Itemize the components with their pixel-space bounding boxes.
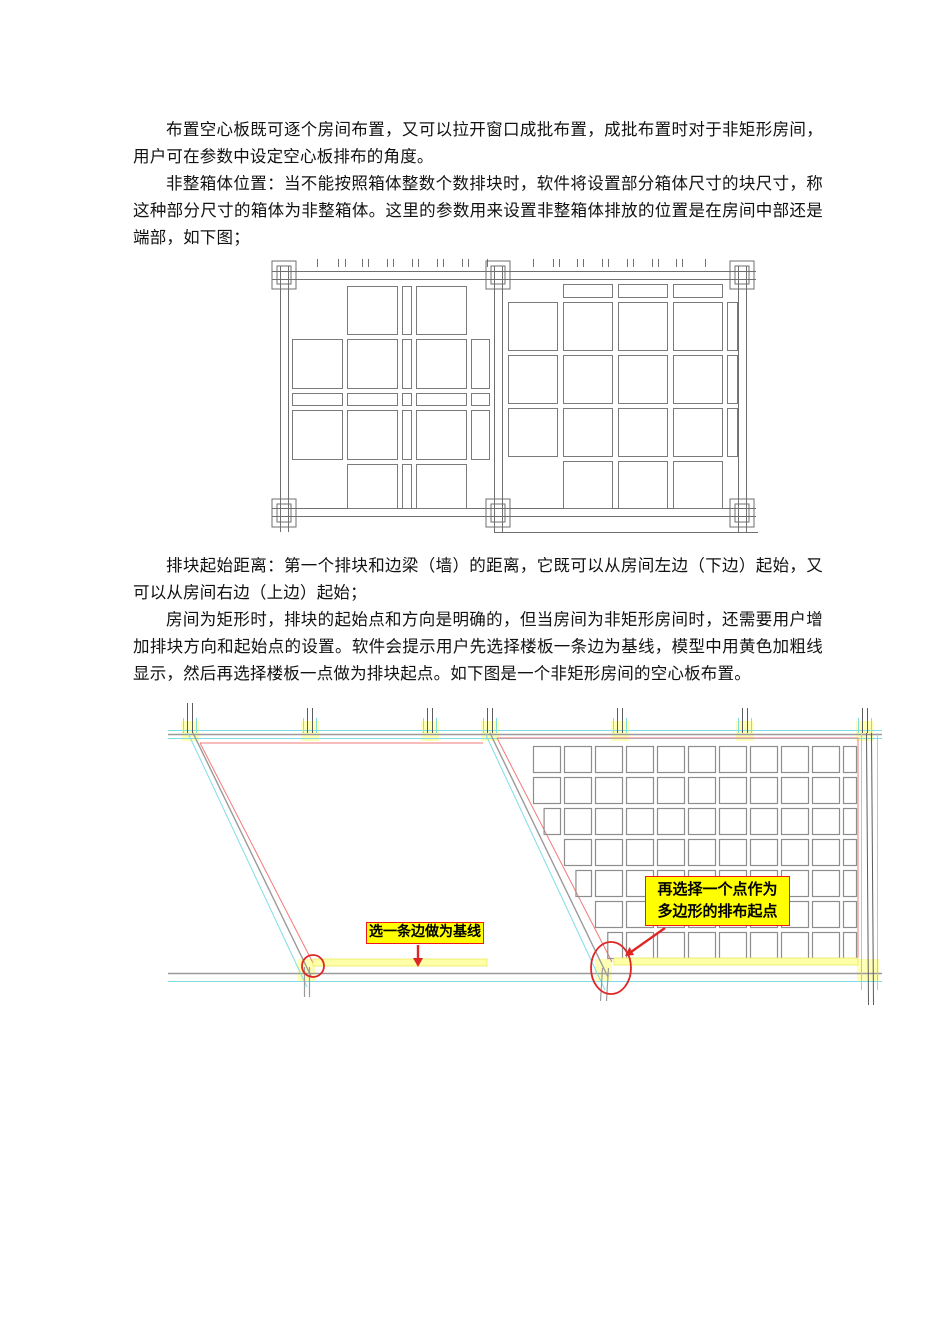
figure-polygon-room-plan: 选一条边做为基线 再选择一个点作为 多边形的排布起点 — [165, 700, 885, 1020]
paragraph-partial-box-position: 非整箱体位置：当不能按照箱体整数个数排块时，软件将设置部分箱体尺寸的块尺寸，称这… — [133, 170, 823, 251]
box-grid-plan-canvas — [268, 256, 760, 538]
start-point-callout-line1: 再选择一个点作为 — [646, 879, 789, 901]
start-point-callout-line2: 多边形的排布起点 — [646, 901, 789, 923]
baseline-callout: 选一条边做为基线 — [366, 922, 484, 944]
paragraph-batch-layout: 布置空心板既可逐个房间布置，又可以拉开窗口成批布置，成批布置时对于非矩形房间，用… — [133, 116, 823, 170]
figure-box-grid-plan — [268, 256, 760, 538]
paragraph-non-rect-room: 房间为矩形时，排块的起始点和方向是明确的，但当房间为非矩形房间时，还需要用户增加… — [133, 606, 823, 687]
paragraph-start-distance: 排块起始距离：第一个排块和边梁（墙）的距离，它既可以从房间左边（下边）起始，又可… — [133, 552, 823, 606]
polygon-room-canvas — [165, 700, 885, 1020]
start-point-callout: 再选择一个点作为 多边形的排布起点 — [645, 876, 790, 926]
document-page: 布置空心板既可逐个房间布置，又可以拉开窗口成批布置，成批布置时对于非矩形房间，用… — [0, 0, 950, 1344]
